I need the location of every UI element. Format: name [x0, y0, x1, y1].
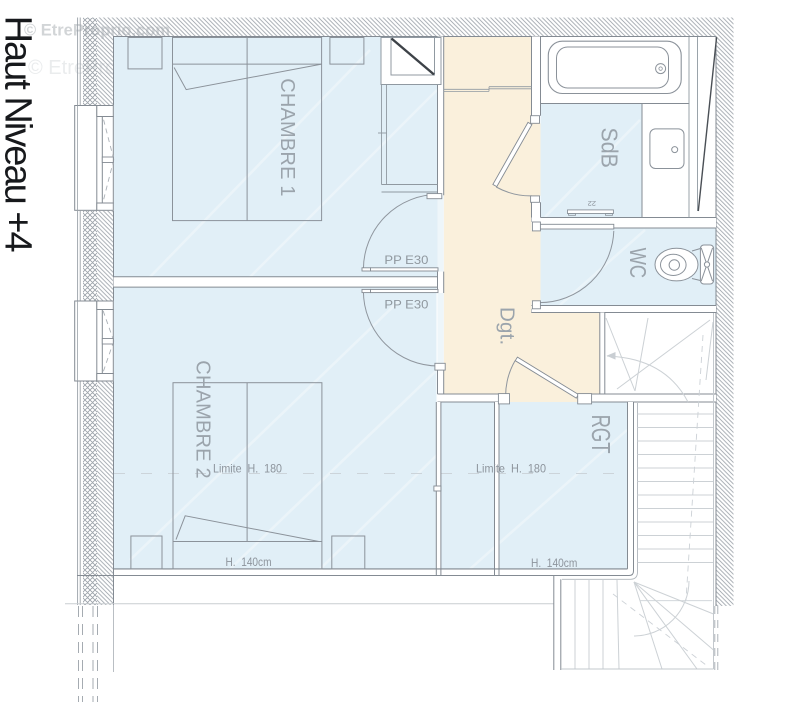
svg-text:Limite H. 180: Limite H. 180	[476, 462, 546, 476]
svg-text:SdB: SdB	[597, 128, 623, 168]
svg-text:H. 140cm: H. 140cm	[226, 555, 272, 569]
svg-text:WC: WC	[624, 248, 650, 279]
svg-text:RGT: RGT	[586, 415, 615, 454]
svg-text:22: 22	[588, 199, 596, 208]
svg-text:CHAMBRE 1: CHAMBRE 1	[276, 78, 298, 197]
svg-text:Limite H. 180: Limite H. 180	[213, 462, 282, 476]
svg-text:PP E30: PP E30	[384, 253, 428, 267]
svg-text:Dgt.: Dgt.	[496, 307, 519, 345]
svg-text:PP E30: PP E30	[384, 298, 428, 312]
svg-text:H. 140cm: H. 140cm	[531, 556, 577, 570]
svg-text:CHAMBRE 2: CHAMBRE 2	[191, 360, 213, 479]
svg-text:Haut Niveau +4: Haut Niveau +4	[0, 16, 39, 253]
